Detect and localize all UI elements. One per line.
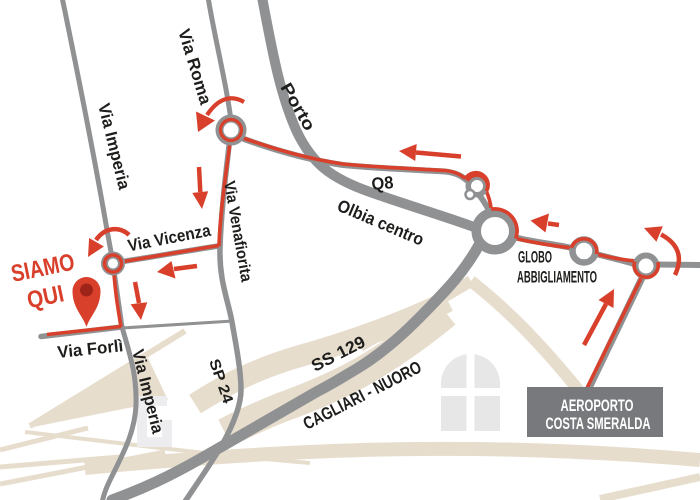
svg-text:GLOBO: GLOBO [518, 249, 552, 267]
svg-text:Q8: Q8 [371, 172, 395, 194]
svg-text:AEROPORTO: AEROPORTO [561, 397, 634, 415]
svg-text:COSTA SMERALDA: COSTA SMERALDA [546, 415, 651, 433]
svg-text:ABBIGLIAMENTO: ABBIGLIAMENTO [517, 269, 597, 287]
